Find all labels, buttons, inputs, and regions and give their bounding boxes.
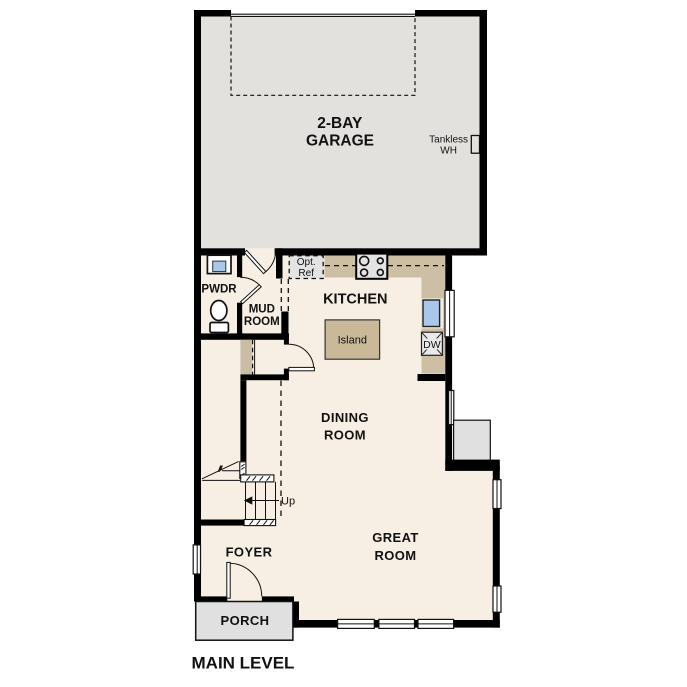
svg-text:Ref: Ref [298, 268, 314, 279]
svg-text:Up: Up [281, 495, 295, 507]
svg-text:Island: Island [338, 335, 367, 347]
svg-text:Tankless: Tankless [429, 134, 468, 145]
svg-text:DW: DW [423, 339, 441, 351]
svg-text:ROOM: ROOM [324, 427, 366, 442]
svg-text:Opt.: Opt. [297, 257, 316, 268]
svg-text:PWDR: PWDR [201, 284, 237, 296]
svg-text:PORCH: PORCH [221, 613, 270, 628]
svg-text:GREAT: GREAT [372, 530, 419, 545]
svg-text:DINING: DINING [321, 410, 369, 425]
svg-text:KITCHEN: KITCHEN [323, 291, 387, 307]
svg-text:MUD: MUD [249, 303, 275, 315]
svg-text:FOYER: FOYER [226, 544, 273, 559]
svg-text:2-BAY: 2-BAY [317, 115, 363, 132]
svg-text:ROOM: ROOM [244, 316, 280, 328]
svg-text:MAIN LEVEL: MAIN LEVEL [192, 654, 295, 673]
svg-text:ROOM: ROOM [374, 548, 416, 563]
svg-text:WH: WH [440, 145, 457, 156]
svg-text:GARAGE: GARAGE [306, 132, 374, 149]
